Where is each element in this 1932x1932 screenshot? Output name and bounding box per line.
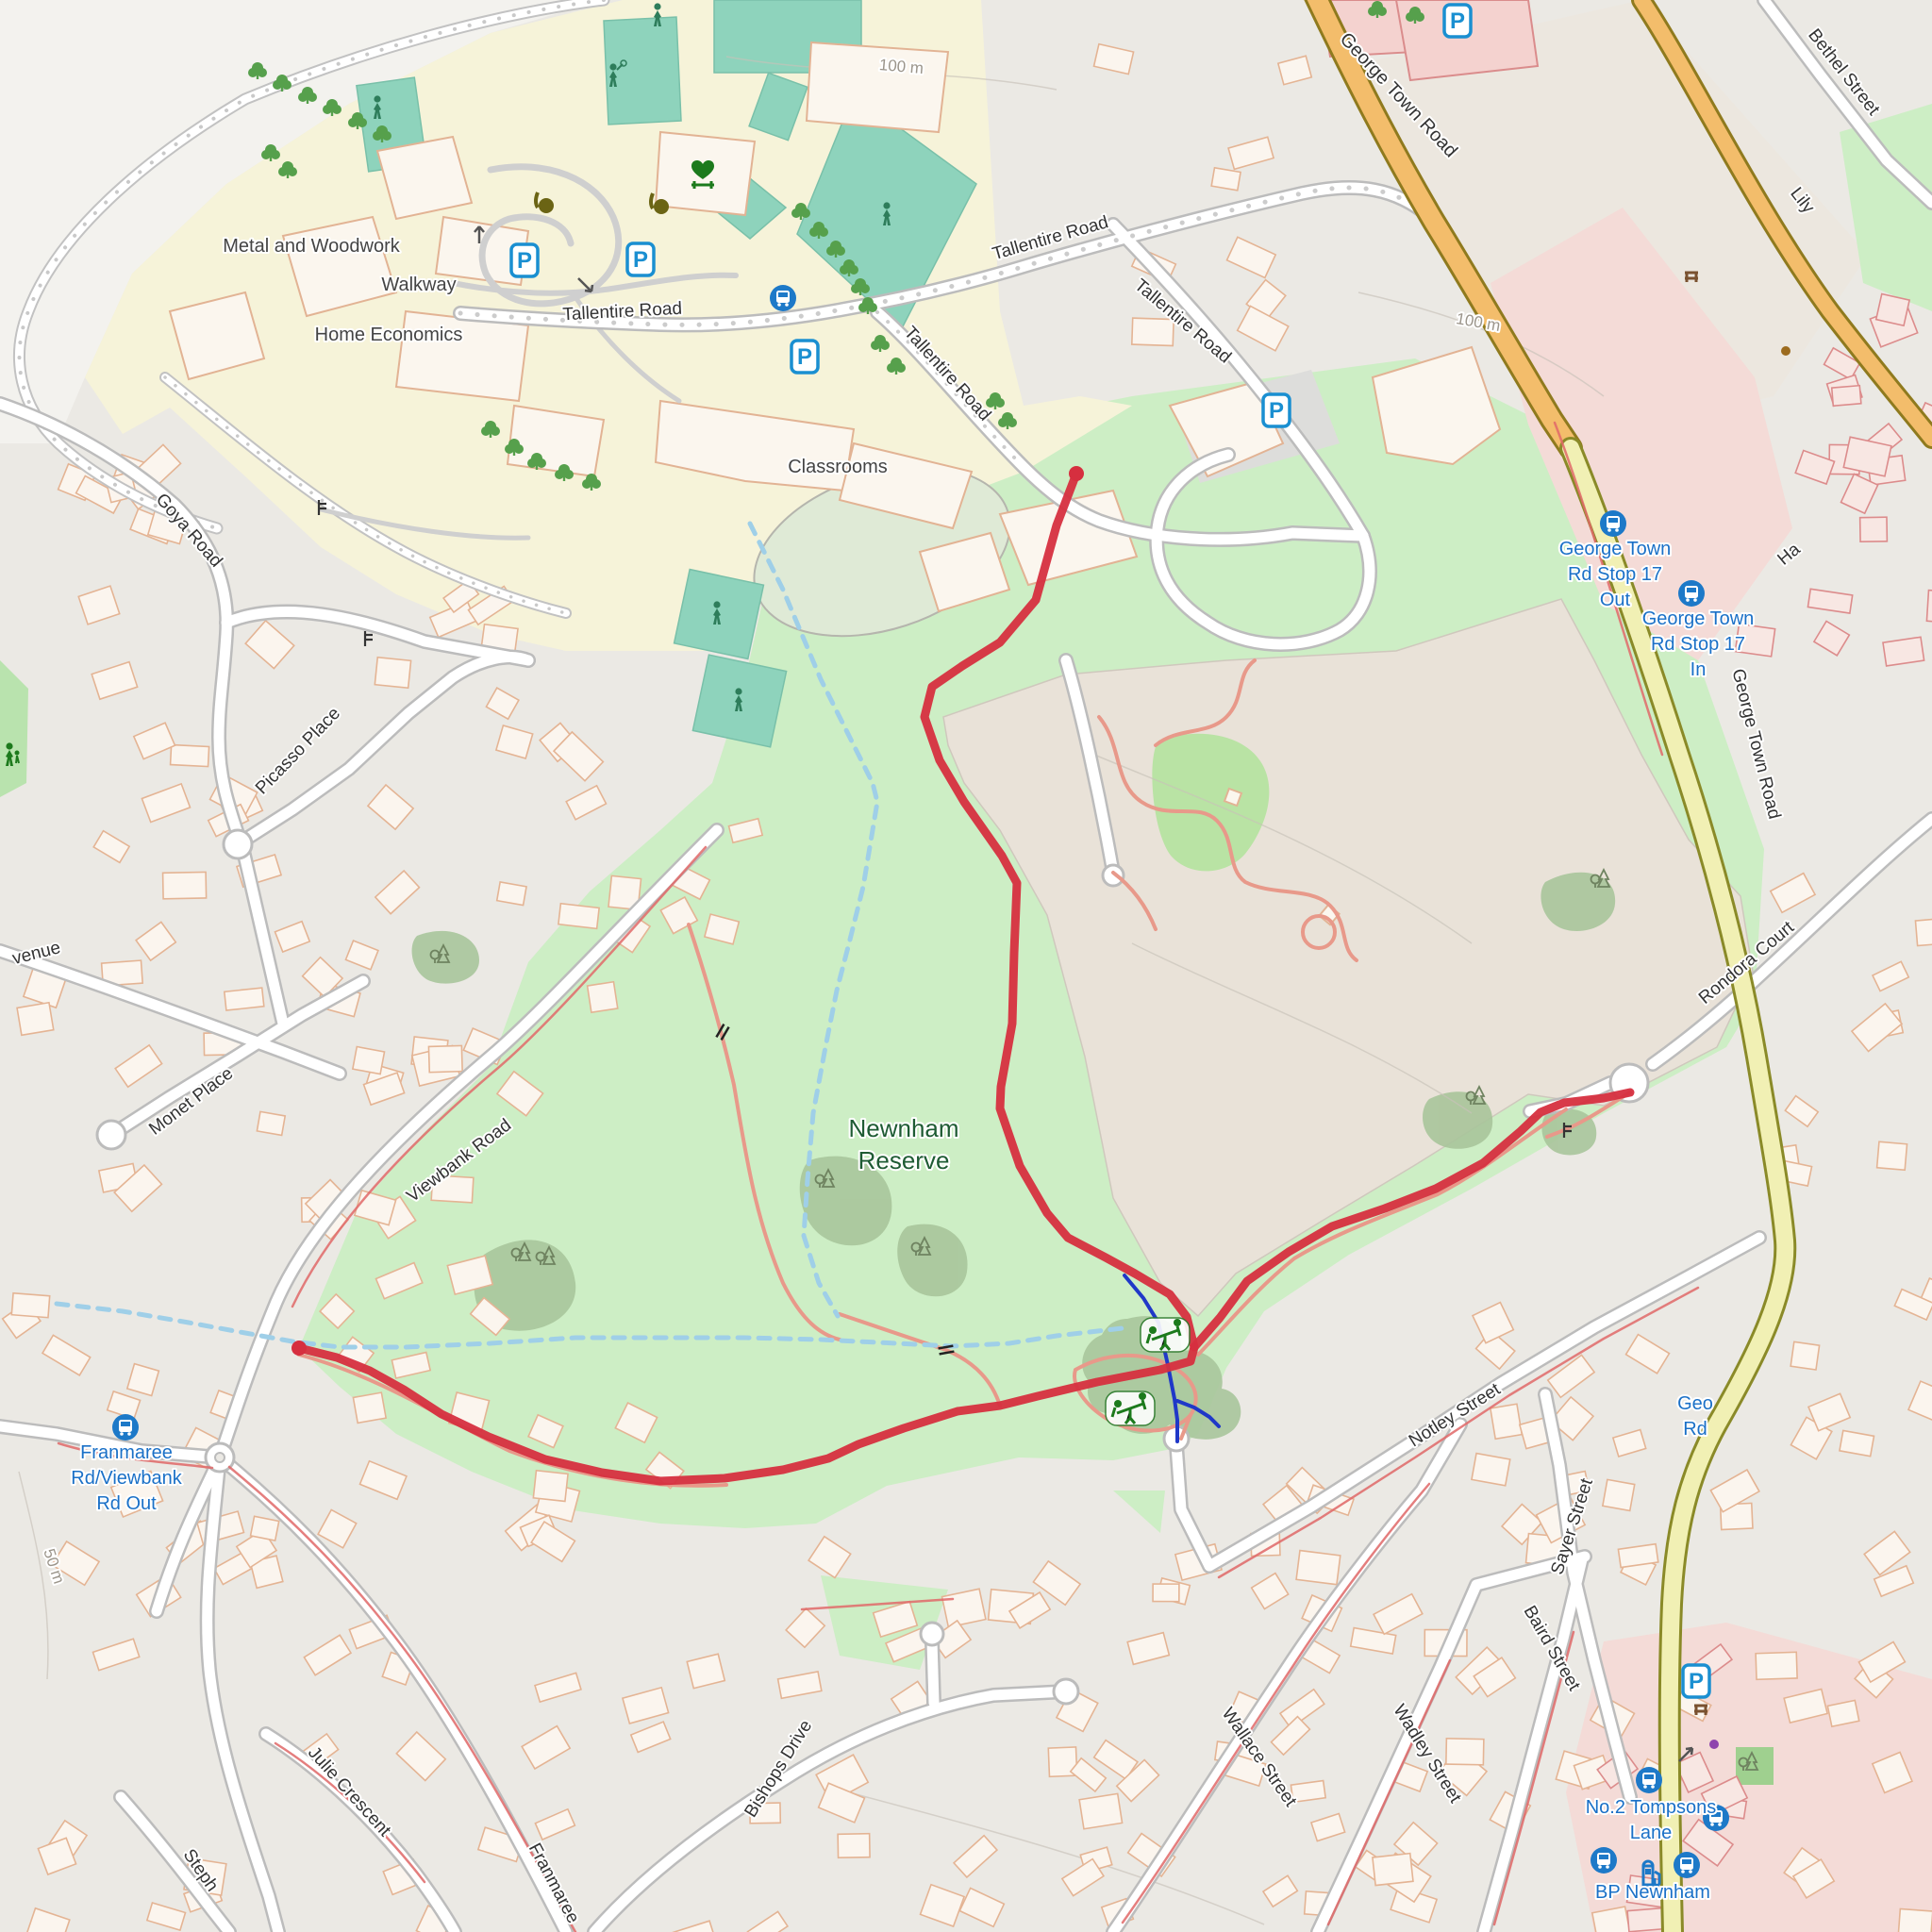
playground-icon [1141, 1318, 1190, 1352]
label-classrooms: Classrooms [788, 457, 888, 477]
bus-icon [1591, 1847, 1617, 1874]
label-home-economics: Home Economics [315, 325, 463, 345]
bus-icon [770, 285, 796, 311]
parking-icon: P [1444, 5, 1471, 37]
label-metal-and-woodwork: Metal and Woodwork [223, 236, 401, 257]
label-walkway: Walkway [381, 275, 456, 295]
dot-purple-icon [1709, 1740, 1719, 1749]
dot-brown-icon [1781, 346, 1790, 356]
bus-icon [1678, 580, 1705, 607]
parking-icon: P [791, 341, 818, 373]
svg-text:P: P [1689, 1669, 1704, 1694]
bus-icon [1674, 1852, 1700, 1878]
parking-icon: P [1263, 394, 1290, 426]
svg-text:P: P [633, 247, 648, 273]
bus-icon [112, 1414, 139, 1441]
svg-text:P: P [1450, 8, 1465, 34]
bus-icon [1600, 510, 1626, 537]
bus-icon [1636, 1767, 1662, 1793]
parking-icon: P [511, 244, 538, 276]
svg-text:P: P [797, 344, 812, 370]
map-canvas[interactable]: PPPPPP Metal and WoodworkWalkwayHome Eco… [0, 0, 1932, 1932]
svg-text:P: P [1269, 398, 1284, 424]
playground-icon [1106, 1391, 1155, 1425]
parking-icon: P [627, 243, 654, 275]
parking-icon: P [1683, 1665, 1709, 1697]
label-bp-newnham: BP Newnham [1595, 1882, 1710, 1903]
svg-text:P: P [517, 248, 532, 274]
